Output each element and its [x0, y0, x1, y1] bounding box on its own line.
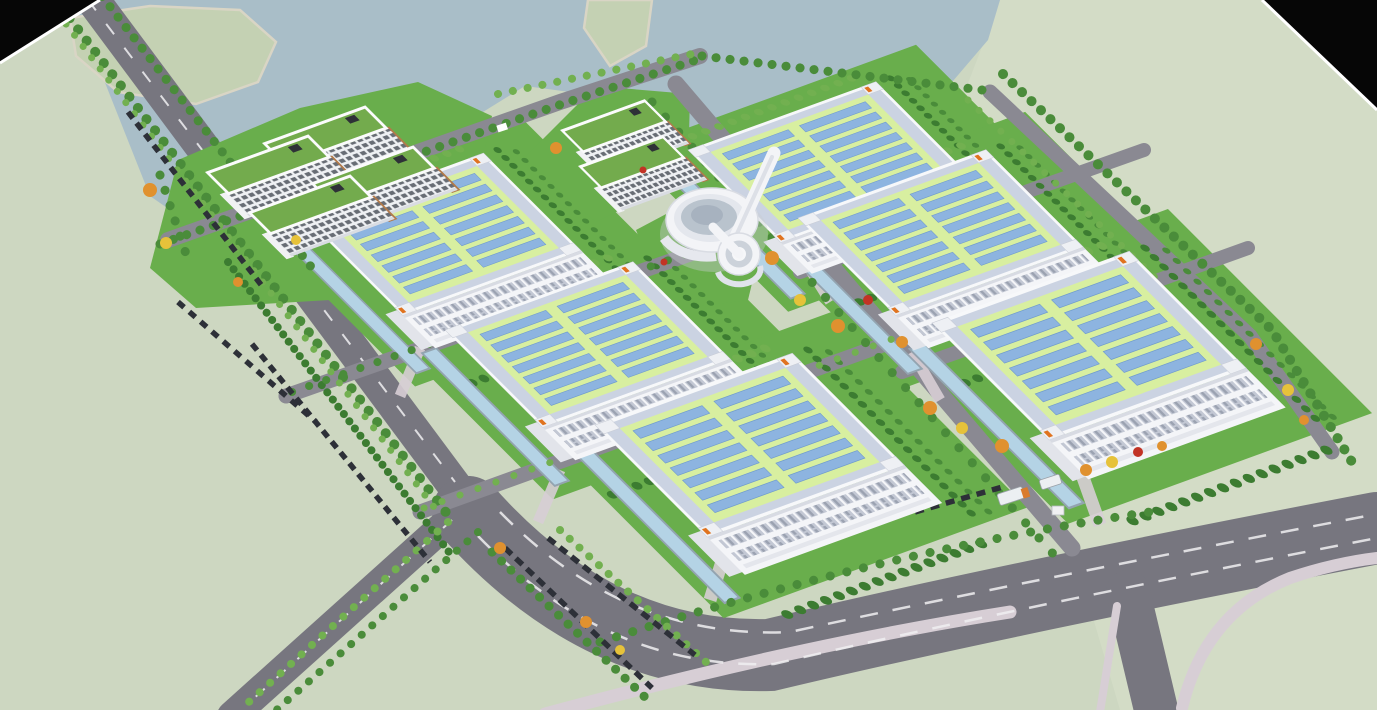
autumn-tree — [956, 422, 968, 434]
autumn-tree — [1106, 456, 1118, 468]
autumn-tree — [580, 616, 592, 628]
autumn-tree — [550, 142, 562, 154]
road-south-fork — [1128, 592, 1158, 710]
autumn-tree — [1250, 338, 1262, 350]
red-shrub — [661, 259, 668, 266]
autumn-tree — [765, 251, 779, 265]
autumn-tree — [1282, 384, 1294, 396]
autumn-tree — [291, 235, 301, 245]
autumn-tree — [995, 439, 1009, 453]
courtyard-center — [691, 205, 723, 225]
industrial-park-rendering — [0, 0, 1377, 710]
red-shrub — [640, 167, 647, 174]
autumn-tree — [1080, 464, 1092, 476]
autumn-tree — [1299, 415, 1309, 425]
autumn-tree — [233, 277, 243, 287]
autumn-tree — [794, 294, 806, 306]
autumn-tree — [143, 183, 157, 197]
autumn-tree — [160, 237, 172, 249]
autumn-tree — [615, 645, 625, 655]
autumn-tree — [923, 401, 937, 415]
autumn-tree — [863, 295, 873, 305]
gate-house — [1052, 506, 1064, 515]
autumn-tree — [896, 336, 908, 348]
autumn-tree — [1133, 447, 1143, 457]
autumn-tree — [494, 542, 506, 554]
autumn-tree — [1157, 441, 1167, 451]
render-canvas — [0, 0, 1377, 710]
autumn-tree — [831, 319, 845, 333]
